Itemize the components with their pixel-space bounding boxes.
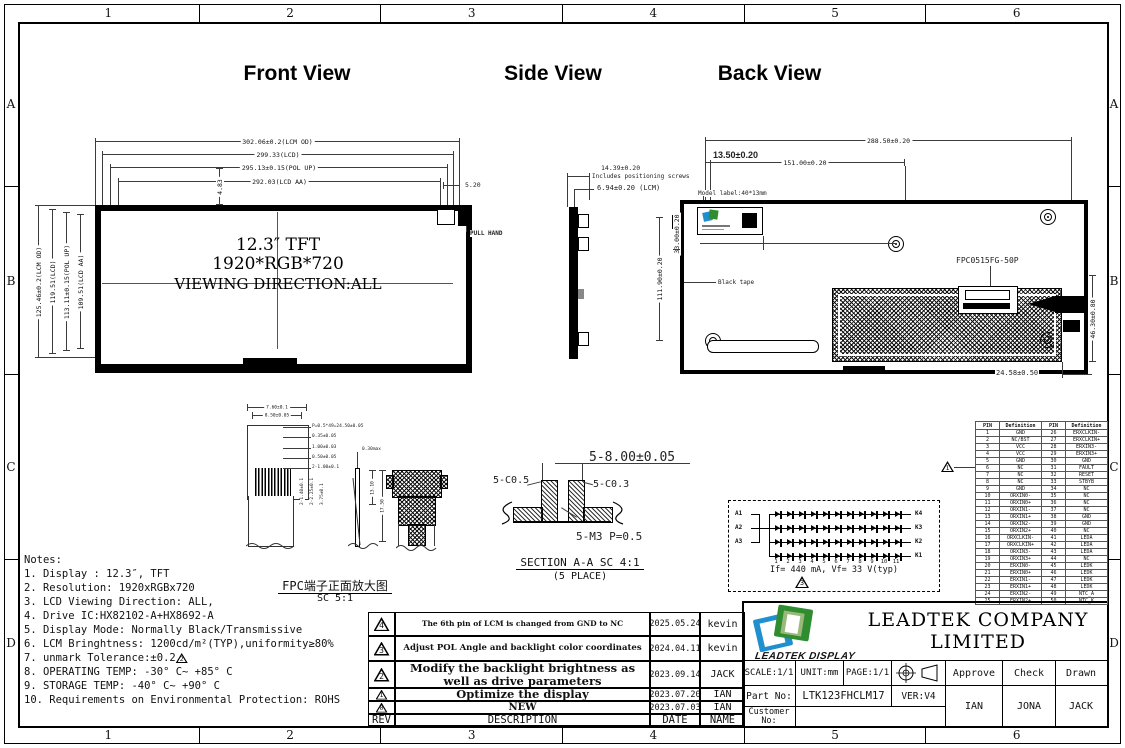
anode-label: A2	[735, 524, 742, 531]
pin-table-cell: 39	[1042, 521, 1066, 528]
page-field: PAGE:1/1	[844, 661, 891, 685]
cathode-label: K2	[915, 538, 922, 545]
pin-definition-table: PINDefinitionPINDefinition 1GND26ERXCLKI…	[975, 421, 1108, 605]
pin-table-cell: 45	[1042, 563, 1066, 570]
drawing-element: 46.30±0.80	[1089, 297, 1097, 340]
pin-table-header-cell: Definition	[1000, 422, 1042, 430]
cathode-label: K3	[915, 524, 922, 531]
pin-table-row: 7NC32RESET	[976, 472, 1108, 479]
section-dim-c05: 5-C0.5	[492, 475, 530, 486]
pin-table-cell: LEDK	[1066, 584, 1108, 591]
drawing-element: 8. OPERATING TEMP: -30° C~ +85° C	[24, 666, 233, 678]
pin-table-row: 9GND34NC	[976, 486, 1108, 493]
back-dim-mid: 151.00±0.20	[705, 162, 905, 163]
pin-table-cell: 23	[976, 584, 1000, 591]
pin-table-cell: 22	[976, 577, 1000, 584]
fpc-stiffener-top	[392, 470, 442, 498]
revision-triangle: 2	[374, 668, 390, 682]
pin-table-cell: 21	[976, 570, 1000, 577]
pin-table-cell: NTC_A	[1066, 591, 1108, 598]
frame-row-label: B	[4, 187, 18, 375]
frame-column-label: 6	[926, 726, 1107, 744]
led-symbol	[787, 510, 795, 519]
pin-table-cell: 5	[976, 458, 1000, 465]
side-dim-total: 14.39±0.20	[600, 164, 641, 172]
fpc-dim-10: 0.30max	[362, 447, 381, 452]
revision-rev-cell: 3	[368, 636, 395, 661]
screen-viewing-text: VIEWING DIRECTION:ALL	[158, 275, 398, 293]
dim-lcd-width: 299.33(LCD)	[102, 154, 454, 155]
drawing-line	[582, 463, 583, 480]
pin-table-row: 2NC/BST27ERXCLKIN+	[976, 437, 1108, 444]
drawing-element: SECTION A-A SC 4:1	[516, 556, 643, 570]
pin-table-cell: 27	[1042, 437, 1066, 444]
drawing-line	[742, 601, 1107, 603]
pin-table-cell: 1	[976, 430, 1000, 437]
frame-column-label: 1	[18, 726, 200, 744]
revision-triangle: 3	[795, 576, 809, 588]
back-view-title: Back View	[712, 62, 827, 86]
drawing-element: 2. Resolution: 1920xRGBx720	[24, 582, 195, 594]
drawing-line	[357, 452, 358, 468]
drawing-element: 17.50	[381, 497, 386, 515]
break-line-wave	[348, 541, 384, 551]
side-dim-lcm: 6.94±0.20 (LCM)	[596, 184, 661, 192]
led-string: K1	[769, 556, 911, 557]
revision-name-cell: JACK	[700, 661, 745, 688]
dim-pol-height: 113.11±0.15(POL UP)	[66, 212, 67, 351]
revision-triangle: 1	[376, 690, 388, 700]
revision-triangle: 1	[941, 461, 954, 472]
pin-table-cell: ORXCLKIN+	[1000, 542, 1042, 549]
led-symbol	[895, 538, 903, 547]
drawing-line	[769, 514, 770, 557]
led-string: K2	[769, 542, 911, 543]
drawing-element: 0	[376, 705, 388, 712]
pin-table-cell: 47	[1042, 577, 1066, 584]
sticker-qr-code	[742, 213, 757, 228]
drawing-line	[283, 448, 311, 449]
pin-table-header-cell: Definition	[1066, 422, 1108, 430]
pin-table-cell: 33	[1042, 479, 1066, 486]
pin-table-cell: NC	[1066, 556, 1108, 563]
side-view-title: Side View	[498, 62, 608, 86]
pin-table-cell: ERXIN3-	[1066, 444, 1108, 451]
pin-table-cell: NC	[1066, 500, 1108, 507]
revision-description-cell: Modify the backlight brightness as well …	[395, 661, 650, 688]
pin-table-row: 10ORXIN0-35NC	[976, 493, 1108, 500]
pin-table-cell: ERXIN0-	[1000, 563, 1042, 570]
pin-table-cell: GND	[1000, 486, 1042, 493]
drawing-line	[466, 226, 467, 232]
drawing-line	[751, 514, 759, 515]
frame-column-label: 2	[200, 4, 382, 22]
revision-rev-cell: 0	[368, 701, 395, 714]
frame-row-label: A	[4, 22, 18, 187]
scale-field: SCALE:1/1	[743, 661, 795, 685]
pin-table-cell: 34	[1042, 486, 1066, 493]
led-symbol	[811, 524, 819, 533]
back-right-tab-small	[1063, 320, 1080, 332]
led-symbol	[883, 524, 891, 533]
front-view-title: Front View	[232, 62, 362, 86]
led-symbol	[823, 510, 831, 519]
pin-table-row: 22ERXIN1-47LEDK	[976, 577, 1108, 584]
revision-triangle: 2	[176, 653, 188, 663]
pin-table-cell: 48	[1042, 584, 1066, 591]
pin-table-cell: 12	[976, 507, 1000, 514]
pin-table-row: 18ORXIN3-43LEDA	[976, 549, 1108, 556]
pin-table-cell: ORXIN3+	[1000, 556, 1042, 563]
pin-table-cell: 4	[976, 451, 1000, 458]
drawing-line	[283, 437, 311, 438]
drawing-element: 3	[374, 647, 390, 656]
drawing-element: 1	[376, 692, 388, 699]
frame-row-label: D	[1107, 560, 1121, 726]
drawing-element: 7.60±0.1	[264, 406, 290, 411]
revision-header-name: NAME	[700, 714, 745, 726]
drawing-line	[118, 185, 119, 205]
pull-hand-notch	[437, 209, 455, 225]
led-symbol	[895, 524, 903, 533]
pin-table-cell: 29	[1042, 451, 1066, 458]
break-line-wave	[246, 541, 296, 551]
revision-rev-cell: 2	[368, 661, 395, 688]
drawing-element	[348, 544, 378, 549]
back-dim-33: 33.00±0.20	[676, 217, 677, 250]
pin-table-cell: ORXIN1+	[1000, 514, 1042, 521]
drawing-element: 2	[374, 673, 390, 682]
dim-5-20: 5.20	[464, 181, 482, 189]
pin-table-cell: 17	[976, 542, 1000, 549]
drawing-element	[922, 665, 937, 681]
revision-name-cell: IAN	[700, 688, 745, 701]
backlight-circuit-diagram: K4K3K2K1 A1A2A3 1234567891011 If= 440 mA…	[728, 500, 940, 592]
note-item: 7. unmark Tolerance:±0.22	[24, 651, 364, 665]
pin-table-cell: ERXIN0+	[1000, 570, 1042, 577]
back-right-tab	[1055, 296, 1085, 313]
dim-aa-width: 292.03(LCD AA)	[118, 181, 441, 182]
back-dim-24: 24.58±0.50	[995, 369, 1039, 377]
revision-date-cell: 2023.07.03	[650, 701, 700, 714]
pin-table-cell: 31	[1042, 465, 1066, 472]
back-dim-46: 46.30±0.80	[1092, 275, 1093, 362]
pin-table-row: 4VCC29ERXIN3+	[976, 451, 1108, 458]
note-item: 8. OPERATING TEMP: -30° C~ +85° C	[24, 665, 364, 679]
screen-size-text: 12.3″ TFT	[178, 235, 378, 255]
revision-header-date: DATE	[650, 714, 700, 726]
drawing-line	[38, 357, 95, 358]
pin-table-cell: 46	[1042, 570, 1066, 577]
frame-column-label: 4	[563, 726, 745, 744]
company-name: LEADTEK COMPANY LIMITED	[858, 608, 1098, 654]
drawing-element: 33.00±0.20	[673, 212, 681, 255]
note-item: 2. Resolution: 1920xRGBx720	[24, 581, 364, 595]
model-label-sticker	[697, 207, 763, 235]
drawing-element: 4.83	[216, 177, 224, 197]
sticker-text-line	[702, 229, 724, 230]
pin-table-row: 1GND26ERXCLKIN-	[976, 430, 1108, 437]
revision-date-cell: 2023.09.14	[650, 661, 700, 688]
pin-table-cell: 38	[1042, 514, 1066, 521]
fpc-dim-9: 3.75±0.1	[320, 483, 325, 505]
pin-table-row: 14ORXIN2-39GND	[976, 521, 1108, 528]
drawing-line	[555, 463, 690, 464]
drawn-name: JACK	[1056, 686, 1106, 726]
pin-table-cell: 7	[976, 472, 1000, 479]
drawing-element: 151.00±0.20	[781, 159, 828, 167]
revision-name-cell: IAN	[700, 701, 745, 714]
fpc-dim-7: 2-1.40±0.1	[300, 478, 305, 505]
revision-triangle: 3	[374, 642, 390, 656]
pin-table-row: 24ERXIN2-49NTC_A	[976, 591, 1108, 598]
note-item: 6. LCM Bringhtness: 1200cd/m²(TYP),unifo…	[24, 637, 364, 651]
drawing-element: 295.13±0.15(POL UP)	[240, 164, 318, 172]
drawing-element: 119.51(LCD)	[49, 258, 57, 305]
drawing-line	[990, 266, 991, 286]
fpc-tape-inner-outline	[838, 294, 1056, 356]
pin-table-cell: ERXCLKIN+	[1066, 437, 1108, 444]
drawing-element: 8.50±0.05	[263, 414, 291, 419]
revision-description-cell: Optimize the display	[395, 688, 650, 701]
drawing-line	[700, 243, 895, 244]
dim-lcm-od-height: 125.46±0.2(LCM OD)	[38, 205, 39, 358]
frame-column-label: 6	[926, 4, 1107, 22]
drawing-line	[589, 173, 590, 200]
company-logo: LEADTEK DISPLAY	[746, 604, 864, 662]
pull-hand-tab	[458, 211, 471, 226]
drawing-element: 302.06±0.2(LCM OD)	[240, 138, 314, 146]
pin-table-cell: GND	[1000, 458, 1042, 465]
drawing-line	[684, 282, 716, 283]
pin-table-cell: 44	[1042, 556, 1066, 563]
pin-table-cell: ORXIN0-	[1000, 493, 1042, 500]
pin-table-cell: LEDA	[1066, 542, 1108, 549]
drawing-line	[110, 171, 111, 205]
drawing-line	[1062, 362, 1063, 378]
led-symbol	[835, 510, 843, 519]
led-symbol	[835, 524, 843, 533]
pin-table-cell: ORXCLKIN-	[1000, 535, 1042, 542]
light-bar-slot	[707, 340, 819, 353]
pin-table-cell: 2	[976, 437, 1000, 444]
unit-field: UNIT:mm	[796, 661, 843, 685]
pin-table-cell: LEDK	[1066, 570, 1108, 577]
revision-date-cell: 2024.04.11	[650, 636, 700, 661]
break-line-curl	[609, 500, 629, 526]
screw-hole	[888, 236, 904, 252]
side-lug	[578, 237, 589, 251]
fpc-connector-contacts	[963, 303, 1010, 309]
pin-table-cell: NC	[1000, 479, 1042, 486]
pin-table-cell: GND	[1066, 514, 1108, 521]
fpc-dim-3: 0.35±0.05	[312, 434, 336, 439]
drawing-element	[613, 502, 623, 524]
back-dim-offset: 13.50±0.20	[712, 150, 759, 160]
drawing-line	[440, 185, 441, 205]
drawing-element: 288.50±0.20	[865, 137, 912, 145]
fpc-dim-12: 17.50	[382, 470, 383, 542]
fpc-stiffener-mid	[398, 496, 436, 526]
pin-table-cell: ERXCLKIN-	[1066, 430, 1108, 437]
part-no-value: LTK123FHCLM17	[796, 686, 891, 706]
drawing-line	[763, 236, 764, 250]
frame-row-label: C	[4, 375, 18, 560]
note-item: 3. LCD Viewing Direction: ALL,	[24, 595, 364, 609]
notes-title: Notes:	[24, 553, 364, 567]
pin-table-row: 19ORXIN3+44NC	[976, 556, 1108, 563]
led-symbol	[847, 538, 855, 547]
pin-table-cell: 24	[976, 591, 1000, 598]
fpc-dim-11: 13.10	[372, 470, 373, 505]
pin-table-row: 20ERXIN0-45LEDK	[976, 563, 1108, 570]
pin-table-cell: 30	[1042, 458, 1066, 465]
back-dim-width: 288.50±0.20	[705, 140, 1072, 141]
led-symbol	[799, 524, 807, 533]
dim-aa-height: 109.51(LCD AA)	[80, 214, 81, 349]
pin-table-cell: ORXIN2-	[1000, 521, 1042, 528]
drawing-line	[447, 171, 448, 205]
fpc-dim-6: 2-1.00±0.1	[312, 465, 339, 470]
led-symbol	[895, 510, 903, 519]
frame-column-strip-top: 123456	[18, 4, 1107, 22]
fpc-stiffener-ear	[386, 475, 394, 489]
pin-table-row: 23ERXIN1+48LEDK	[976, 584, 1108, 591]
frame-column-label: 1	[18, 4, 200, 22]
fpc-dim-1: 8.50±0.05	[252, 415, 302, 416]
drawing-element: 3. LCD Viewing Direction: ALL,	[24, 596, 214, 608]
revision-table: 4The 6th pin of LCM is changed from GND …	[368, 612, 745, 726]
pin-table-row: 17ORXCLKIN+42LEDA	[976, 542, 1108, 549]
pin-table-cell: 37	[1042, 507, 1066, 514]
fpc-connector-label: FPC0515FG-50P	[955, 256, 1020, 265]
pin-table-cell: 28	[1042, 444, 1066, 451]
approve-label: Approve	[946, 661, 1002, 685]
drawing-element: 111.90±0.20	[656, 255, 664, 302]
drawing-element: 10. Requirements on Environmental Protec…	[24, 694, 340, 706]
pin-table-cell: LEDK	[1066, 577, 1108, 584]
frame-column-label: 5	[745, 726, 927, 744]
pin-table-header-row: PINDefinitionPINDefinition	[976, 422, 1108, 430]
sticker-text-line	[702, 225, 730, 227]
notes-block: Notes: 1. Display : 12.3″, TFT2. Resolut…	[24, 553, 364, 707]
revision-rev-cell: 4	[368, 612, 395, 636]
pin-table-cell: 16	[976, 535, 1000, 542]
model-label-note: Model label:40*13mm	[698, 190, 767, 197]
frame-row-label: B	[1107, 187, 1121, 375]
anode-label: A3	[735, 538, 742, 545]
drawing-element	[502, 502, 512, 524]
pin-table-cell: 10	[976, 493, 1000, 500]
back-dim-height: 111.90±0.20	[659, 217, 660, 341]
side-profile	[569, 207, 578, 359]
drawing-element: PINDefinitionPINDefinition	[976, 422, 1108, 430]
check-name: JONA	[1003, 686, 1055, 726]
side-lug	[578, 332, 589, 346]
drawing-element: 292.03(LCD AA)	[250, 178, 309, 186]
frame-column-label: 5	[745, 4, 927, 22]
back-bottom-tab	[843, 366, 885, 373]
drawing-line	[95, 145, 96, 205]
pin-table-cell: LEDA	[1066, 535, 1108, 542]
pin-table-cell: NC	[1000, 472, 1042, 479]
dim-pol-width: 295.13±0.15(POL UP)	[110, 167, 448, 168]
frame-column-label: 4	[563, 4, 745, 22]
section-caption: SECTION A-A SC 4:1	[505, 556, 655, 569]
drawing-element: 4. Drive IC:HX82102-A+HX8692-A	[24, 610, 214, 622]
drawing-line	[283, 458, 311, 459]
led-symbol	[859, 524, 867, 533]
pin-table-row: 12ORXIN1-37NC	[976, 507, 1108, 514]
fpc-dim-0: 7.60±0.1	[247, 407, 307, 408]
revision-name-cell: kevin	[700, 636, 745, 661]
revision-header-rev: REV	[368, 714, 395, 726]
led-symbol	[775, 538, 783, 547]
drawing-element: 5. Display Mode: Normally Black/Transmis…	[24, 624, 302, 636]
frame-column-label: 3	[381, 726, 563, 744]
fpc-connector-slot	[965, 290, 1010, 300]
led-symbol	[799, 510, 807, 519]
drawing-line	[574, 189, 594, 190]
customer-no-label: Customer No:	[743, 707, 795, 726]
pin-table-row: 5GND30GND	[976, 458, 1108, 465]
pin-table-cell: ERXIN2-	[1000, 591, 1042, 598]
led-symbol	[883, 510, 891, 519]
led-symbol	[811, 510, 819, 519]
pin-table-cell: ORXIN1-	[1000, 507, 1042, 514]
dim-lcm-od-width: 302.06±0.2(LCM OD)	[95, 141, 460, 142]
cathode-label: K1	[915, 552, 922, 559]
drawing-element	[396, 546, 436, 551]
pin-table-cell: GND	[1000, 430, 1042, 437]
pin-table-cell: NC/BST	[1000, 437, 1042, 444]
drawing-element: 3	[795, 580, 809, 588]
pin-table-row: 16ORXCLKIN-41LEDA	[976, 535, 1108, 542]
fpc-connector	[958, 286, 1018, 314]
side-lug-gray	[578, 289, 584, 299]
black-tape-label: Black tape	[718, 279, 754, 286]
pin-table-cell: STBYB	[1066, 479, 1108, 486]
fpc-exit-arrow	[1028, 296, 1055, 312]
drawing-line	[1062, 374, 1092, 375]
note-item: 4. Drive IC:HX82102-A+HX8692-A	[24, 609, 364, 623]
logo-inner-page	[785, 614, 801, 634]
revision-description-cell: The 6th pin of LCM is changed from GND t…	[395, 612, 650, 636]
drawing-element: 6. LCM Bringhtness: 1200cd/m²(TYP),unifo…	[24, 638, 334, 650]
drawing-element: 299.33(LCD)	[254, 151, 301, 159]
revision-rev-cell: 1	[368, 688, 395, 701]
fpc-dim-8: 2-2.25±0.1	[310, 478, 315, 505]
drawing-element: 113.11±0.15(POL UP)	[63, 242, 71, 320]
led-symbol	[859, 538, 867, 547]
drawing-element: 4	[374, 622, 390, 631]
frame-column-label: 3	[381, 4, 563, 22]
pin-table-cell: 14	[976, 521, 1000, 528]
backlight-spec: If= 440 mA, Vf= 33 V(typ)	[729, 565, 939, 575]
break-line-wave	[396, 543, 438, 553]
section-dim-c03: 5-C0.3	[592, 479, 630, 490]
cathode-label: K4	[915, 510, 922, 517]
drawing-sheet: 123456 123456 ABCD ABCD Front View Side …	[0, 0, 1125, 748]
revision-description-cell: Adjust POL Angle and backlight color coo…	[395, 636, 650, 661]
pin-table-cell: NC	[1066, 486, 1108, 493]
screen-resolution-text: 1920*RGB*720	[178, 254, 378, 274]
pin-table-cell: 36	[1042, 500, 1066, 507]
section-boss-left	[541, 480, 558, 522]
dim-4-83-line: 4.83	[219, 168, 220, 205]
revision-date-cell: 2025.05.24	[650, 612, 700, 636]
dim-5-20-line	[443, 185, 460, 186]
